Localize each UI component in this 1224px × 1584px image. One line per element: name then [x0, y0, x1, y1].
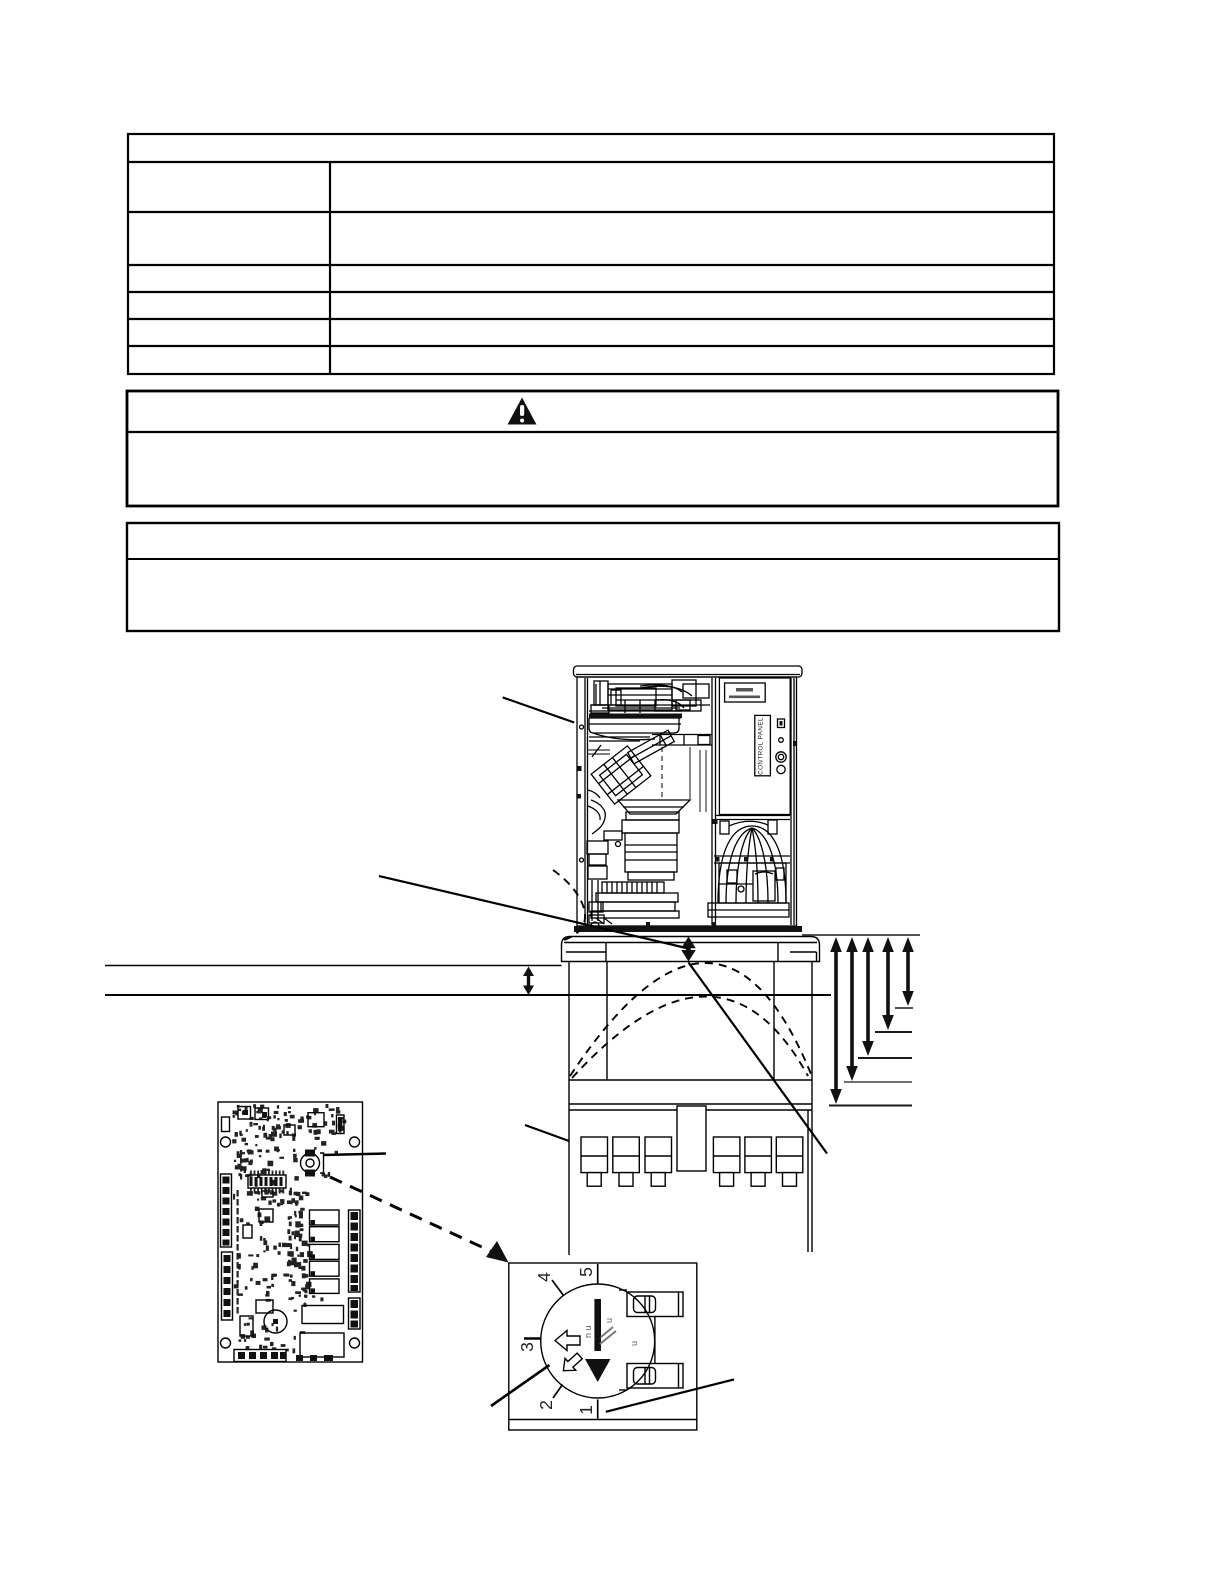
svg-text:1: 1 — [576, 1405, 596, 1415]
svg-text:u: u — [629, 1341, 639, 1346]
svg-text:4: 4 — [534, 1272, 554, 1282]
svg-text:5: 5 — [576, 1267, 596, 1277]
svg-text:CONTROL PANEL: CONTROL PANEL — [758, 717, 765, 775]
svg-text:3: 3 — [517, 1342, 537, 1352]
svg-text:u: u — [604, 1318, 614, 1323]
svg-text:n u: n u — [583, 1325, 593, 1338]
svg-text:2: 2 — [536, 1400, 556, 1410]
